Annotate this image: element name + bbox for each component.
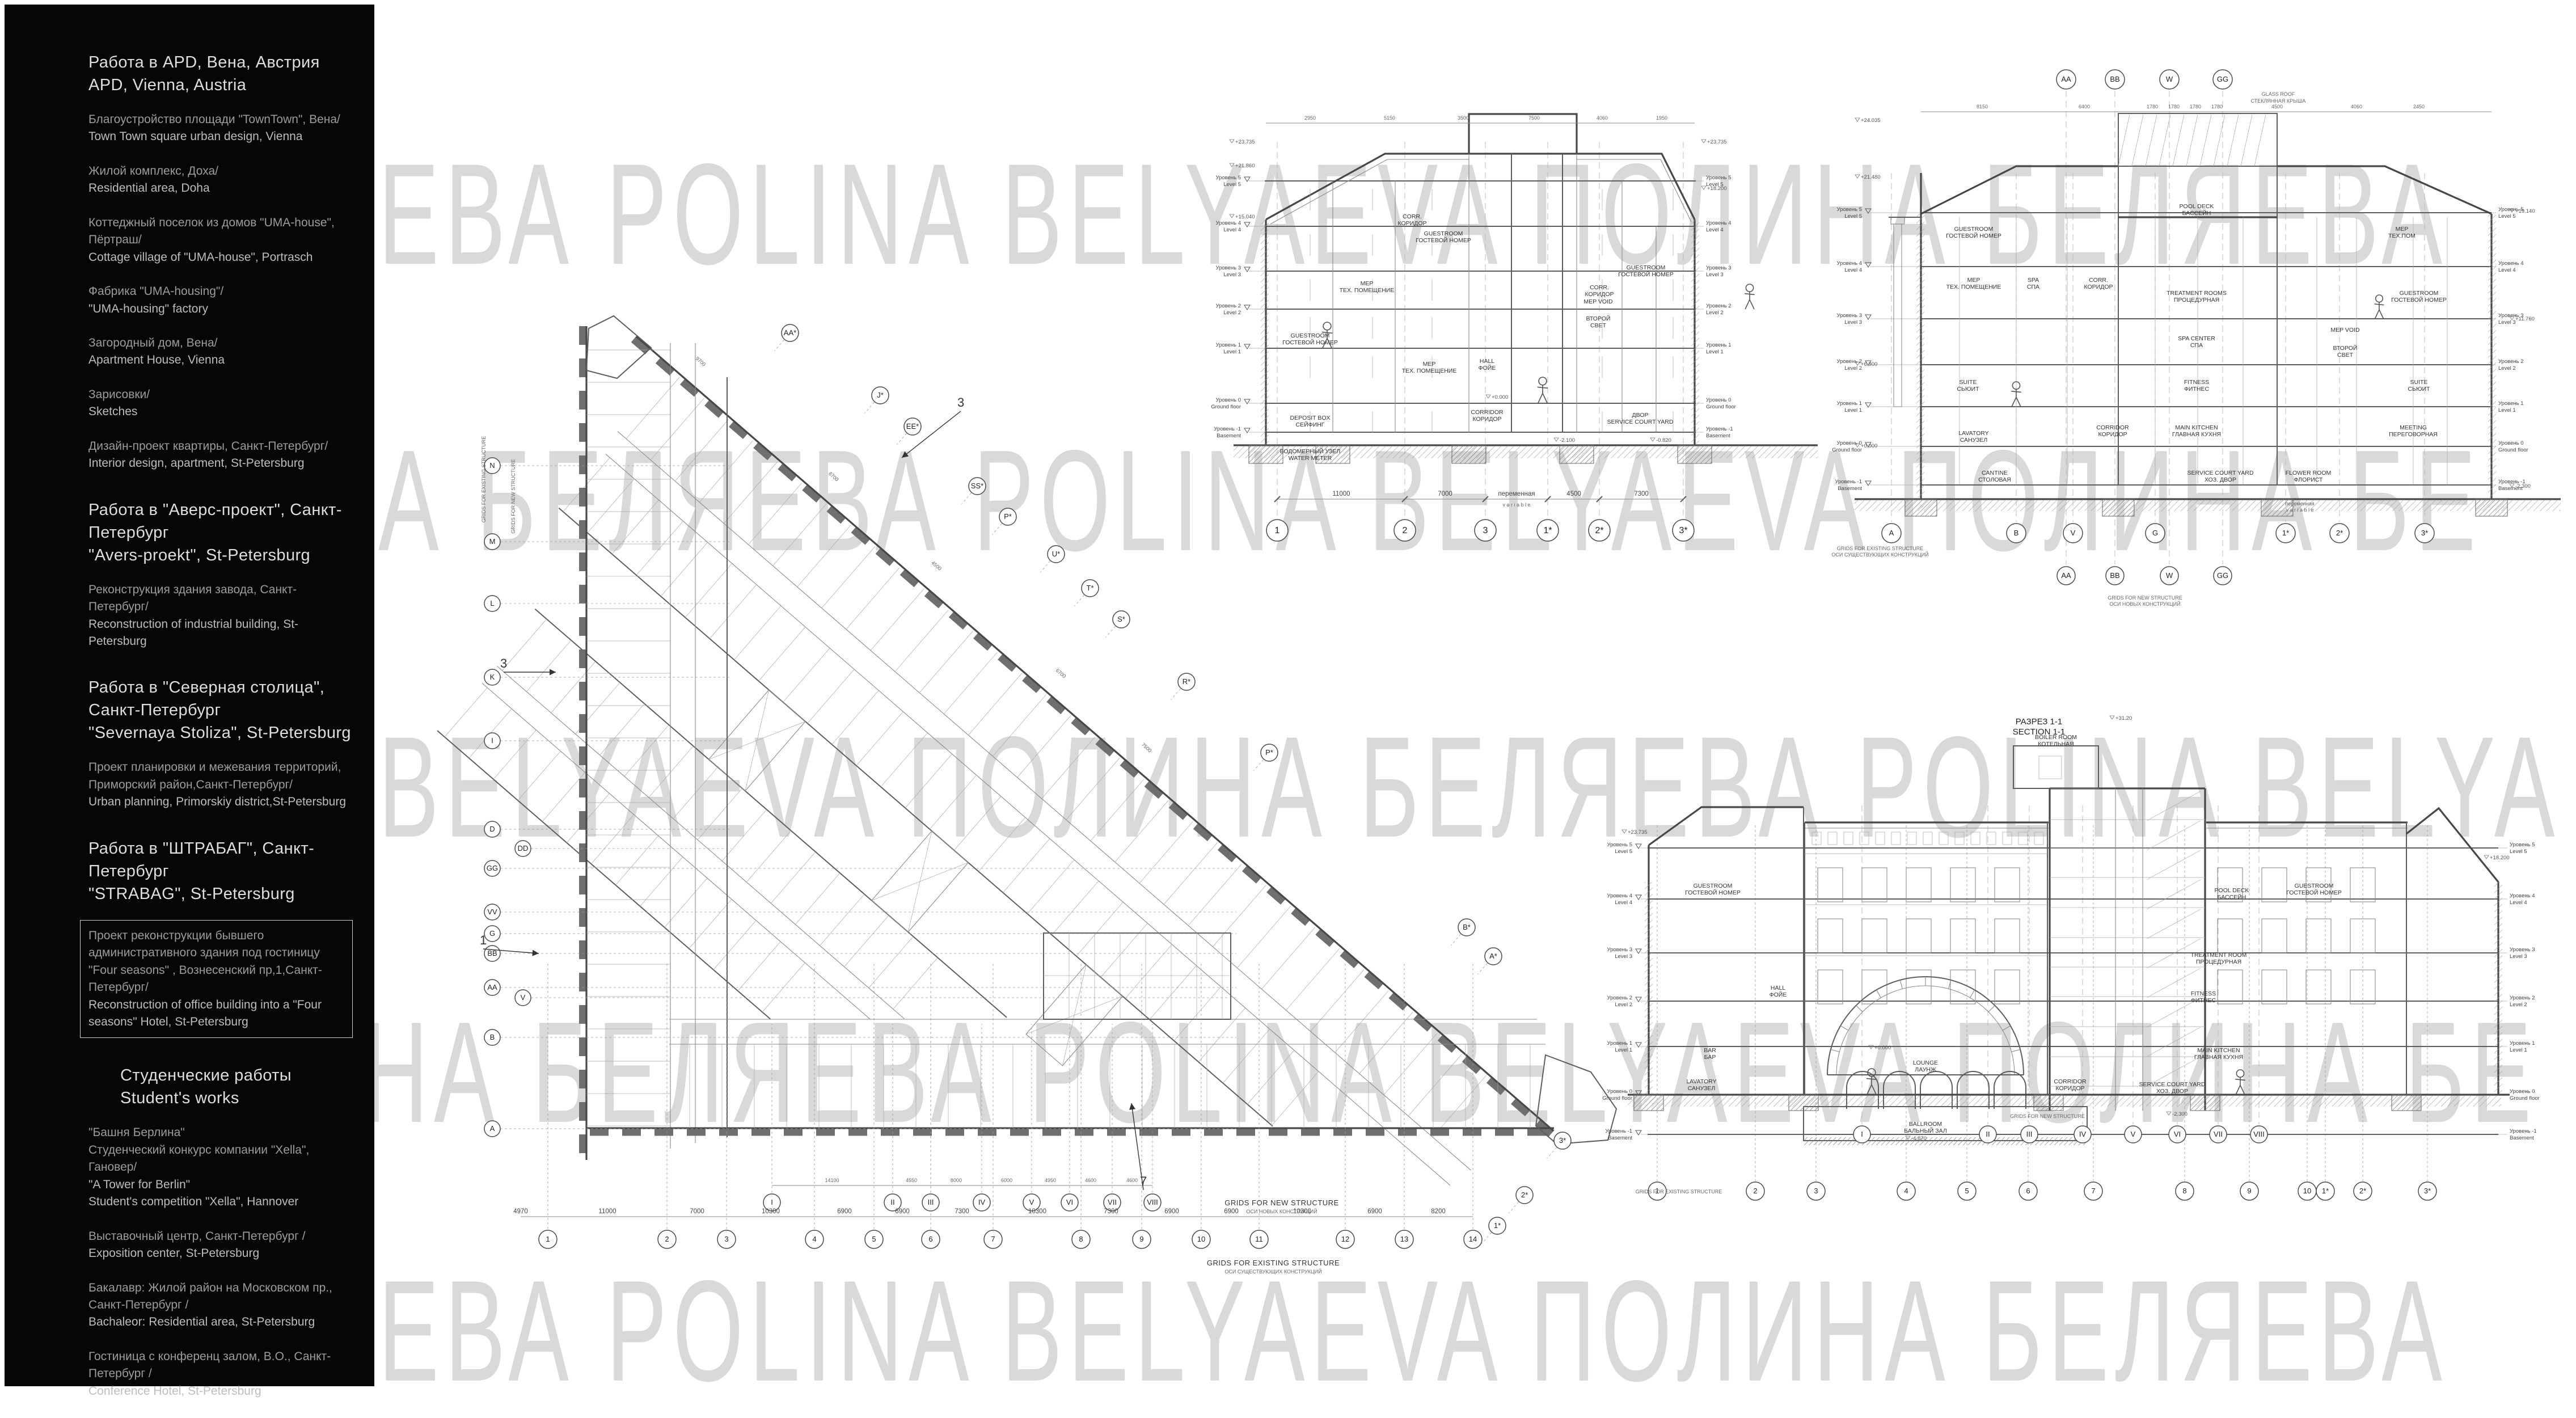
person-head bbox=[2236, 1070, 2244, 1077]
roof-left-inner bbox=[1270, 159, 1469, 224]
grid-bubble-VIII: VIII bbox=[1144, 1194, 1161, 1211]
footing bbox=[2190, 1095, 2220, 1111]
dimension-value: 11000 bbox=[598, 1208, 616, 1215]
grid-bubble-B*: B* bbox=[1458, 919, 1475, 936]
grid-bubble-II: II bbox=[1979, 1126, 1996, 1143]
room-divider bbox=[1164, 843, 1217, 905]
room-label-line2: ФОЙЕ bbox=[1770, 991, 1787, 998]
room-label-line1: CORRIDOR bbox=[2096, 424, 2129, 431]
dimension: 1780 bbox=[2147, 104, 2158, 109]
dome-strut bbox=[2003, 1026, 2011, 1031]
ground-hatch bbox=[1855, 500, 2561, 511]
grid-bubble-label: 1* bbox=[1494, 1221, 1501, 1230]
grid-bubble-14: 14 bbox=[1464, 1230, 1482, 1248]
clerestory-window bbox=[1923, 832, 1932, 845]
room-divider bbox=[759, 627, 805, 681]
room-label-line1: MEETING bbox=[2400, 424, 2427, 431]
project-title-en: Exposition center, St-Petersburg bbox=[88, 1245, 353, 1262]
grid-bubble-new-GG: GG bbox=[2214, 567, 2232, 585]
grids-new-en: GRIDS FOR NEW STRUCTURE bbox=[2108, 595, 2182, 601]
glazing-bar bbox=[2159, 115, 2170, 166]
elevation-icon bbox=[1230, 214, 1234, 218]
level-name-en: Level 3 bbox=[2498, 319, 2516, 326]
grid-bubble-label: K bbox=[490, 673, 495, 681]
room-divider bbox=[685, 563, 732, 617]
glazing-bar bbox=[2186, 115, 2198, 166]
dimension: 7300 bbox=[1104, 1208, 1118, 1215]
glazing-bar bbox=[2146, 115, 2157, 166]
level-name-ru: Уровень 4 bbox=[1836, 260, 1862, 267]
dimension: 11000 bbox=[598, 1208, 616, 1215]
stair-flight bbox=[2147, 880, 2201, 909]
grid-bubble-label: AA* bbox=[784, 328, 796, 337]
grid-bubble-A*: A* bbox=[1485, 948, 1502, 965]
wall-hatch bbox=[2494, 882, 2502, 1095]
dimension: 2450 bbox=[2413, 104, 2425, 109]
room-label-line1: CANTINE bbox=[1982, 470, 2008, 476]
grid-bubble-label: VV bbox=[487, 908, 497, 916]
grid-bubble-top-W: W bbox=[2160, 70, 2179, 89]
footing bbox=[1789, 1095, 1818, 1111]
room-label-line2: ФИТНЕС bbox=[2184, 386, 2210, 393]
elevation-icon bbox=[2110, 716, 2114, 719]
grid-bubble-label: U* bbox=[1052, 550, 1060, 558]
grids-existing-en: GRIDS FOR EXISTING STRUCTURE bbox=[1207, 1259, 1340, 1267]
level-name-en: Level 4 bbox=[1706, 227, 1724, 233]
room-divider bbox=[1076, 902, 1123, 956]
sidebar-section-heading: Работа в "ШТРАБАГ", Санкт-Петербург "STR… bbox=[88, 837, 353, 905]
grid-bubble-label: V bbox=[521, 993, 526, 1002]
sidebar-item: Бакалавр: Жилой район на Московском пр.,… bbox=[88, 1280, 353, 1331]
dimension: 4500 bbox=[2271, 104, 2283, 109]
diag2-corridor-wall bbox=[497, 666, 904, 1019]
person-leg bbox=[1872, 1085, 1876, 1095]
person-head bbox=[1746, 284, 1753, 292]
room-label: SUITEСЬЮИТ bbox=[1957, 379, 1979, 393]
level-name-ru: Уровень -1 bbox=[1835, 479, 1862, 485]
dimension: 1780 bbox=[2168, 104, 2180, 109]
grid-bubble-D: D bbox=[484, 821, 500, 837]
room-label: GUESTROOMГОСТЕВОЙ НОМЕР bbox=[1946, 226, 2001, 239]
room-divider bbox=[895, 610, 948, 672]
level-name-ru: Уровень -1 bbox=[1706, 426, 1733, 432]
room-label-line2: ПРОЦЕДУРНАЯ bbox=[2174, 297, 2219, 303]
stair-flight bbox=[2147, 791, 2201, 821]
room-label-line2: ГОСТЕВОЙ НОМЕР bbox=[1416, 237, 1471, 244]
sidebar-item: "Башня Берлина" Студенческий конкурс ком… bbox=[88, 1124, 353, 1210]
grid-bubble-A: A bbox=[484, 1121, 500, 1137]
grid-bubble-label: 3 bbox=[724, 1235, 728, 1243]
grids-existing-ru: ОСИ СУЩЕСТВУЮЩИХ КОНСТРУКЦИЙ bbox=[1831, 551, 1928, 558]
dimension-value-alt: v a r i a b l e bbox=[2286, 507, 2313, 513]
dimension-value: 8200 bbox=[1431, 1208, 1446, 1215]
room-divider bbox=[1042, 737, 1095, 799]
grids-new-en: GRIDS FOR NEW STRUCTURE bbox=[1224, 1198, 1338, 1207]
elevation-value: +18.200 bbox=[2490, 855, 2510, 861]
room-divider bbox=[526, 640, 571, 692]
room-divider bbox=[1125, 944, 1172, 998]
elevation-value: +23.735 bbox=[1707, 139, 1727, 145]
glass-roof-ru: СТЕКЛЯННАЯ КРЫША bbox=[2251, 98, 2306, 104]
grid-bubble-new-BB: BB bbox=[2106, 567, 2124, 585]
dimension: 8200 bbox=[1431, 1208, 1446, 1215]
grid-bubble-label: VI bbox=[1066, 1198, 1073, 1206]
room-label-line2: КОТЕЛЬНАЯ bbox=[2038, 741, 2074, 748]
grid-bubble-top-BB: BB bbox=[2105, 70, 2125, 89]
person-figure bbox=[1866, 1069, 1877, 1095]
grid-bubble-label: 7 bbox=[991, 1235, 995, 1243]
diag-corridor-wall bbox=[606, 454, 1450, 1185]
room-label-line1: SUITE bbox=[2410, 379, 2428, 386]
person-leg bbox=[2375, 310, 2379, 319]
dimension-value: 1950 bbox=[1656, 115, 1667, 121]
roof-left bbox=[1921, 166, 2118, 214]
grid-bubble-label: B* bbox=[1463, 923, 1471, 931]
room-divider bbox=[567, 794, 609, 843]
room-label-line1: MAIN KITCHEN bbox=[2197, 1047, 2240, 1054]
level-name-en: Ground floor bbox=[2498, 447, 2528, 453]
room-label: GUESTROOMГОСТЕВОЙ НОМЕР bbox=[2391, 290, 2447, 303]
project-title-ru: Загородный дом, Вена/ bbox=[88, 335, 353, 352]
dimension-value: 1780 bbox=[2168, 104, 2180, 109]
clerestory-window bbox=[1876, 832, 1885, 845]
diag-corridor-wall bbox=[618, 432, 1471, 1171]
room-label-line1: GUESTROOM bbox=[2400, 290, 2439, 297]
room-label: SUITEСЬЮИТ bbox=[2408, 379, 2430, 393]
room-label-line1: SERVICE COURT YARD bbox=[2139, 1081, 2206, 1088]
project-title-en: "UMA-housing" factory bbox=[88, 301, 353, 318]
elevation-value: -4.870 bbox=[1911, 1136, 1927, 1142]
room-divider bbox=[844, 915, 889, 967]
room-label-line2: БАССЕЙН bbox=[2182, 209, 2211, 217]
room-divider bbox=[1198, 1008, 1245, 1062]
grid-bubble-label: 1 bbox=[546, 1235, 550, 1243]
facade-window bbox=[2262, 970, 2287, 1004]
level-name-ru: Уровень -1 bbox=[2510, 1128, 2537, 1134]
level-marker: Уровень 4Level 4 bbox=[1706, 220, 1732, 233]
project-title-en: Apartment House, Vienna bbox=[88, 352, 353, 369]
dimension-value: 1780 bbox=[2190, 104, 2201, 109]
grid-bubble-VIII: VIII bbox=[2250, 1126, 2267, 1143]
room-label-line1: BALLROOM bbox=[1909, 1121, 1942, 1128]
elevation-icon bbox=[1855, 175, 1860, 178]
level-name-en: Level 4 bbox=[1223, 227, 1241, 233]
grid-bubble-K: K bbox=[484, 669, 500, 685]
room-label-line2: БАЛЬНЫЙ ЗАЛ bbox=[1904, 1127, 1947, 1134]
grid-bubble-label: 13 bbox=[1400, 1235, 1408, 1243]
diag2-outer-wall bbox=[535, 609, 1007, 1018]
room-label-line2: ГЛАВНАЯ КУХНЯ bbox=[2194, 1054, 2243, 1061]
room-divider bbox=[588, 479, 634, 533]
level-marker: Уровень 5Level 5 bbox=[2510, 842, 2535, 855]
room-divider bbox=[591, 814, 634, 864]
elevation-value: +31.20 bbox=[2115, 715, 2132, 721]
section-b: AABBWGGGLASS ROOFСТЕКЛЯННАЯ КРЫШАУровень… bbox=[1831, 70, 2561, 607]
grid-bubble-label: IV bbox=[978, 1198, 986, 1206]
section-cut-number: 7 bbox=[1140, 1174, 1147, 1188]
glazing-bar bbox=[2118, 115, 2130, 166]
room-divider bbox=[1003, 839, 1049, 893]
grid-bubble-label: I bbox=[1861, 1130, 1863, 1138]
room-label: GUESTROOMГОСТЕВОЙ НОМЕР bbox=[1618, 264, 1674, 278]
room-divider bbox=[1115, 800, 1168, 862]
grid-bubble-label: 9 bbox=[2247, 1187, 2251, 1195]
clerestory-window bbox=[1907, 832, 1916, 845]
grid-bubble-P*: P* bbox=[1261, 744, 1278, 761]
dimension-value: 5150 bbox=[1384, 115, 1395, 121]
room-divider bbox=[1150, 965, 1196, 1019]
room-divider bbox=[713, 921, 756, 970]
grid-bubble-P*: P* bbox=[999, 508, 1016, 525]
stair-cross bbox=[1026, 996, 1122, 1034]
dimension: 10300 bbox=[762, 1208, 780, 1215]
level-name-ru: Уровень 0 bbox=[1607, 1088, 1632, 1095]
level-marker: Уровень 4Level 4 bbox=[2510, 893, 2535, 906]
dimension: 6900 bbox=[1224, 1208, 1239, 1215]
grid-bubble-label: 3* bbox=[2421, 529, 2428, 537]
project-title-ru: Реконструкция здания завода, Санкт-Петер… bbox=[88, 581, 353, 616]
dimension-value: 8150 bbox=[1977, 104, 1988, 109]
portico-column bbox=[1894, 224, 1902, 407]
grid-bubble-label: 2* bbox=[2359, 1187, 2366, 1195]
dimension-value: 9700 bbox=[695, 356, 707, 368]
dimension-value: 6700 bbox=[1055, 668, 1067, 680]
room-divider bbox=[846, 568, 900, 630]
grid-bubble-label: 1* bbox=[2322, 1187, 2329, 1195]
sidebar: Работа в APD, Вена, Австрия APD, Vienna,… bbox=[5, 5, 374, 1386]
room-divider bbox=[738, 942, 780, 991]
person-leg bbox=[2379, 310, 2384, 319]
elevation-value: -2.300 bbox=[2172, 1111, 2188, 1117]
room-divider bbox=[551, 661, 596, 713]
sidebar-item: Гостиница с конференц залом, В.О., Санкт… bbox=[88, 1348, 353, 1400]
portico-capital bbox=[1891, 217, 1904, 224]
grid-bubble-1*: 1* bbox=[2316, 1182, 2334, 1200]
grid-bubble-label: W bbox=[2166, 75, 2173, 83]
room-label-line1: MEP bbox=[1361, 280, 1374, 287]
grid-bubble-label: V bbox=[2071, 529, 2076, 537]
person-leg bbox=[1745, 299, 1750, 309]
glazing-bar bbox=[2173, 115, 2184, 166]
roof-left bbox=[1649, 807, 1804, 845]
room-label: GUESTROOMГОСТЕВОЙ НОМЕР bbox=[2286, 883, 2342, 896]
room-label-line1: SERVICE COURT YARD bbox=[2188, 470, 2254, 476]
room-divider bbox=[795, 873, 840, 925]
grid-bubble-S*: S* bbox=[1113, 611, 1130, 628]
grid-bubble-VI: VI bbox=[1061, 1194, 1078, 1211]
grid-bubble-12: 12 bbox=[1336, 1230, 1354, 1248]
dimension-value: 7000 bbox=[690, 1208, 704, 1215]
level-name-ru: Уровень 5 bbox=[2510, 842, 2535, 848]
room-divider bbox=[698, 788, 742, 840]
room-divider bbox=[797, 525, 851, 587]
sidebar-item: Жилой комплекс, Доха/Residential area, D… bbox=[88, 163, 353, 197]
level-name-en: Level 5 bbox=[2498, 213, 2516, 220]
room-divider bbox=[1066, 758, 1120, 820]
grid-bubble-label: 2 bbox=[1753, 1187, 1757, 1195]
dome-strut bbox=[1877, 990, 1881, 998]
elevation-value: +23.735 bbox=[1628, 829, 1648, 835]
facade-window bbox=[2262, 919, 2287, 953]
footing bbox=[1678, 445, 1712, 463]
room-label-line1: GUESTROOM bbox=[1424, 230, 1463, 237]
person-arms bbox=[2375, 304, 2384, 305]
dimension-value: 14100 bbox=[825, 1178, 839, 1183]
project-title-ru: Дизайн-проект квартиры, Санкт-Петербург/ bbox=[88, 438, 353, 455]
room-divider bbox=[1174, 987, 1221, 1041]
level-name-en: Level 3 bbox=[1615, 953, 1632, 960]
room-divider bbox=[1272, 1071, 1318, 1125]
project-title-ru: Проект планировки и межевания территорий… bbox=[88, 759, 353, 794]
room-label-line2: СЬЮИТ bbox=[1957, 386, 1979, 393]
grid-bubble-label: 2* bbox=[2336, 529, 2343, 537]
room-label-line2: ЛАУНЖ bbox=[1915, 1066, 1936, 1073]
sidebar-item: Проект планировки и межевания территорий… bbox=[88, 759, 353, 811]
grid-bubble-DD: DD bbox=[515, 841, 531, 856]
grid-bubble-label: III bbox=[928, 1198, 934, 1206]
room-label-line1: HALL bbox=[1771, 985, 1785, 991]
facade-window bbox=[2262, 868, 2287, 902]
room-label: SPA CENTERСПА bbox=[2178, 335, 2215, 349]
service-block bbox=[1044, 933, 1231, 1019]
grid-bubble-AA*: AA* bbox=[782, 324, 799, 341]
project-title-ru: Коттеджный поселок из домов "UMA-house",… bbox=[88, 214, 353, 249]
stair-flight bbox=[2147, 1027, 2201, 1057]
room-divider bbox=[783, 648, 830, 702]
sidebar-section-heading: Работа в APD, Вена, Австрия APD, Vienna,… bbox=[88, 51, 353, 96]
level-name-en: Level 3 bbox=[2510, 953, 2527, 960]
room-label-line1: GUESTROOM bbox=[1954, 226, 1994, 233]
room-label-line1: SPA CENTER bbox=[2178, 335, 2215, 342]
room-divider bbox=[612, 500, 658, 554]
room-label-line1: BOILER ROOM bbox=[2035, 734, 2077, 741]
project-title-ru: Бакалавр: Жилой район на Московском пр.,… bbox=[88, 1280, 353, 1314]
glazing-bar bbox=[2214, 115, 2225, 166]
grid-bubble-3*: 3* bbox=[1673, 520, 1694, 541]
project-title-ru: Фабрика "UMA-housing"/ bbox=[88, 283, 353, 300]
room-label: SERVICE COURT YARDХОЗ. ДВОР bbox=[2188, 470, 2254, 483]
grid-bubble-label: AA bbox=[2061, 75, 2071, 83]
room-label-line2: СПА bbox=[2027, 284, 2039, 290]
level-name-ru: Уровень 2 bbox=[1706, 303, 1732, 309]
room-label-line2: БАР bbox=[1704, 1054, 1716, 1061]
room-label-line1: LAVATORY bbox=[1686, 1078, 1716, 1085]
grid-bubble-label: G bbox=[489, 929, 495, 938]
grid-bubble-label: B bbox=[490, 1033, 495, 1041]
dome-strut bbox=[1900, 980, 1902, 989]
level-marker: Уровень 2Level 2 bbox=[2498, 358, 2524, 372]
grid-bubble-label: GG bbox=[487, 864, 498, 872]
dimension-value: 4600 bbox=[1126, 1178, 1138, 1183]
grid-bubble-label: J* bbox=[877, 391, 884, 399]
level-name-en: Level 2 bbox=[2498, 365, 2516, 372]
grid-bubble-label: 2 bbox=[665, 1235, 669, 1243]
level-marker: Уровень 3Level 3 bbox=[1836, 313, 1862, 326]
glass-roof-block bbox=[2118, 113, 2277, 166]
sidebar-content: Работа в APD, Вена, Австрия APD, Vienna,… bbox=[88, 51, 353, 1418]
dome-strut bbox=[1970, 990, 1975, 998]
facade-window bbox=[1862, 919, 1887, 953]
grids-new-en: GRIDS FOR NEW STRUCTURE bbox=[2010, 1113, 2085, 1119]
plan: NMLKIDDDGGVVGBBAAVBA1234567891011121314I… bbox=[437, 316, 1616, 1274]
level-name-ru: Уровень 2 bbox=[1215, 303, 1241, 309]
person-leg bbox=[2240, 1085, 2245, 1095]
room-divider bbox=[1017, 716, 1071, 778]
grid-bubble-3*: 3* bbox=[2415, 524, 2434, 543]
glazing-bar bbox=[2200, 115, 2211, 166]
grid-bubble-9: 9 bbox=[1133, 1230, 1151, 1248]
basement-hatch bbox=[1804, 1137, 2087, 1145]
facade-window bbox=[1995, 919, 2020, 953]
grid-bubble-label: D bbox=[489, 825, 495, 833]
dimension-value: 7300 bbox=[1104, 1208, 1118, 1215]
dimension-value: 6400 bbox=[2079, 104, 2090, 109]
person-leg bbox=[1867, 1085, 1872, 1095]
room-label-line2: ХОЗ. ДВОР bbox=[2156, 1088, 2188, 1095]
room-divider bbox=[675, 419, 728, 481]
room-label: CORRIDORКОРИДОР bbox=[2096, 424, 2129, 438]
grid-bubble-label: VII bbox=[2214, 1130, 2223, 1138]
level-name-en: Level 3 bbox=[1844, 319, 1862, 326]
clerestory-window bbox=[1971, 832, 1980, 845]
roof-right bbox=[2277, 166, 2491, 214]
grid-bubble-label: BB bbox=[2110, 571, 2119, 580]
elevation-mark: +21.860 bbox=[1230, 163, 1255, 169]
dimension-value: 10300 bbox=[1028, 1208, 1046, 1215]
elevation-value: +0.000 bbox=[1861, 443, 1877, 449]
elevation-icon bbox=[1855, 118, 1860, 121]
room-label-line2: КОРИДОР bbox=[2084, 284, 2113, 290]
grid-bubble-label: 14 bbox=[1469, 1235, 1477, 1243]
level-marker: Уровень -1Basement bbox=[1706, 426, 1733, 439]
project-title-ru: Выставочный центр, Санкт-Петербург / bbox=[88, 1228, 353, 1245]
level-name-en: Ground floor bbox=[2510, 1095, 2540, 1102]
dimension-value: 4600 bbox=[1085, 1178, 1096, 1183]
sidebar-item: Коттеджный поселок из домов "UMA-house",… bbox=[88, 214, 353, 266]
room-label: BALLROOMБАЛЬНЫЙ ЗАЛ bbox=[1904, 1121, 1947, 1134]
facade-window bbox=[1818, 970, 1843, 1004]
grid-bubble-VII: VII bbox=[2210, 1126, 2227, 1143]
level-marker: Уровень 4Level 4 bbox=[2498, 260, 2524, 273]
wall-hatch bbox=[2488, 214, 2496, 497]
grid-bubble-label: 5 bbox=[872, 1235, 876, 1243]
room-label-line2: ФИТНЕС bbox=[2191, 997, 2216, 1004]
room-label-line2: ФЛОРИСТ bbox=[2294, 476, 2323, 483]
level-name-ru: Уровень 3 bbox=[2510, 947, 2535, 953]
clerestory-window bbox=[1860, 832, 1869, 845]
dome-strut bbox=[1840, 1026, 1848, 1031]
sidebar-section-heading: Работа в "Северная столица", Санкт-Петер… bbox=[88, 676, 353, 744]
grid-bubble-2*: 2* bbox=[1516, 1187, 1533, 1204]
level-marker: Уровень 0Ground floor bbox=[2498, 440, 2528, 453]
room-divider bbox=[1139, 821, 1193, 883]
dimension-value: 4060 bbox=[1597, 115, 1608, 121]
sidebar-item: Выставочный центр, Санкт-Петербург /Expo… bbox=[88, 1228, 353, 1263]
person-arms bbox=[2235, 1079, 2245, 1081]
grid-bubble-label: S* bbox=[1117, 615, 1125, 623]
grids-new-ru: ОСИ НОВЫХ КОНСТРУКЦИЙ bbox=[2109, 601, 2180, 607]
elevation-value: +21.480 bbox=[1861, 174, 1881, 180]
level-marker: Уровень 1Level 1 bbox=[1836, 400, 1862, 413]
room-divider bbox=[502, 619, 547, 670]
level-marker: Уровень -1Basement bbox=[1835, 479, 1862, 492]
room-divider bbox=[930, 775, 976, 829]
level-name-ru: Уровень 5 bbox=[1836, 206, 1862, 213]
cross-section-b-drawing: AABBWGGGLASS ROOFСТЕКЛЯННАЯ КРЫШАУровень… bbox=[1846, 37, 2572, 610]
grid-bubble-label: I bbox=[771, 1198, 773, 1206]
dimension-value: 10300 bbox=[762, 1208, 780, 1215]
room-label: CORR.КОРИДОР bbox=[2084, 277, 2113, 290]
